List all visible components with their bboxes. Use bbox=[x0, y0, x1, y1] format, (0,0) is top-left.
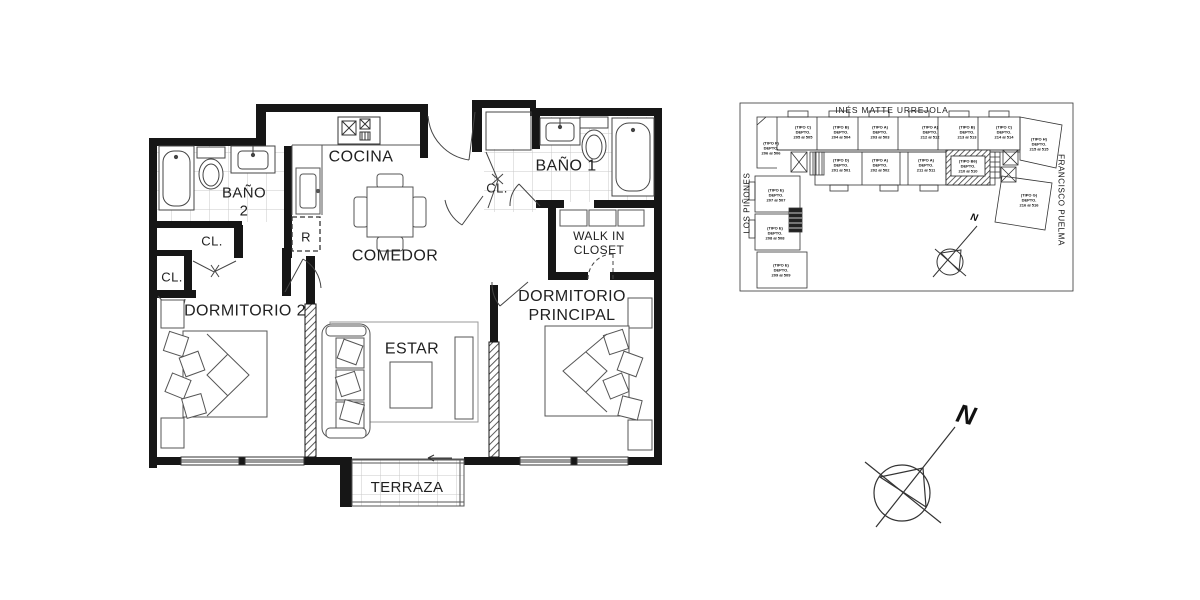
site-plan-title: INÉS MATTE URREJOLA bbox=[835, 105, 948, 115]
room-label-walkin-line2: CLOSET bbox=[573, 243, 625, 257]
dining-table-icon bbox=[354, 174, 426, 251]
room-label-comedor: COMEDOR bbox=[352, 248, 438, 267]
unit-range: 210 al 510 bbox=[959, 169, 978, 174]
unit-label: (TIPO A) DEPTO. 203 al 503 bbox=[871, 125, 890, 140]
unit-range: 202 al 502 bbox=[871, 168, 890, 173]
toilet-icon-2 bbox=[580, 117, 608, 162]
stove-icon bbox=[338, 117, 380, 144]
unit-label: (TIPO A) DEPTO. 211 al 511 bbox=[917, 158, 935, 173]
closet-label-entry: CL. bbox=[486, 180, 507, 195]
unit-label: (TIPO E) DEPTO. 207 al 507 bbox=[767, 188, 786, 203]
room-label-estar: ESTAR bbox=[385, 341, 439, 360]
room-label-bano2-line2: 2 bbox=[222, 202, 266, 220]
unit-range: 214 al 514 bbox=[995, 135, 1014, 140]
unit-range: 206 al 506 bbox=[762, 151, 781, 156]
room-label-principal-line1: DORMITORIO bbox=[518, 288, 626, 307]
room-label-walkin-line1: WALK IN bbox=[573, 229, 625, 243]
unit-range: 208 al 508 bbox=[766, 236, 785, 241]
unit-range: 204 al 504 bbox=[832, 135, 851, 140]
unit-range: 203 al 503 bbox=[871, 135, 890, 140]
street-label-left: LOS PIÑONES bbox=[743, 173, 752, 234]
unit-label: (TIPO H) DEPTO. 215 al 515 bbox=[1030, 137, 1049, 152]
unit-range: 212 al 512 bbox=[921, 135, 940, 140]
bathtub-icon-2 bbox=[612, 118, 654, 196]
unit-label: (TIPO B) DEPTO. 213 al 513 bbox=[958, 125, 977, 140]
room-label-cocina: COCINA bbox=[329, 149, 394, 168]
room-label-principal: DORMITORIO PRINCIPAL bbox=[518, 288, 626, 326]
unit-label: (TIPO D) DEPTO. 201 al 501 bbox=[832, 158, 851, 173]
tv-console-icon bbox=[455, 337, 473, 419]
living-room-furniture bbox=[322, 322, 478, 438]
unit-range: 201 al 501 bbox=[832, 168, 851, 173]
unit-label: (TIPO F) DEPTO. 206 al 506 bbox=[762, 141, 781, 156]
room-label-bano2: BAÑO 2 bbox=[222, 184, 266, 219]
site-compass bbox=[933, 226, 977, 277]
closet-shelves bbox=[560, 210, 644, 226]
refrigerator-label: R bbox=[301, 229, 311, 244]
unit-range: 205 al 505 bbox=[794, 135, 813, 140]
unit-range: 213 al 513 bbox=[958, 135, 977, 140]
toilet-icon bbox=[197, 147, 225, 189]
coffee-table-icon bbox=[390, 362, 432, 408]
unit-label: (TIPO E) DEPTO. 209 al 509 bbox=[772, 263, 791, 278]
page: COCINA BAÑO 2 COMEDOR BAÑO 1 CL. CL. CL.… bbox=[0, 0, 1200, 600]
unit-label: (TIPO C) DEPTO. 205 al 505 bbox=[794, 125, 813, 140]
unit-label: (TIPO B) DEPTO. 204 al 504 bbox=[832, 125, 851, 140]
unit-range: 209 al 509 bbox=[772, 273, 791, 278]
unit-label: (TIPO E) DEPTO. 208 al 508 bbox=[766, 226, 785, 241]
unit-label-highlighted: (TIPO B6) DEPTO. 210 al 510 bbox=[959, 159, 978, 174]
north-compass bbox=[865, 427, 955, 527]
unit-label: (TIPO C) DEPTO. 214 al 514 bbox=[995, 125, 1014, 140]
bathtub-icon bbox=[159, 146, 194, 210]
sink-icon bbox=[231, 146, 275, 173]
room-label-walkin: WALK IN CLOSET bbox=[573, 229, 625, 257]
unit-range: 207 al 507 bbox=[767, 198, 786, 203]
unit-range: 215 al 515 bbox=[1030, 147, 1049, 152]
street-label-right: FRANCISCO PUELMA bbox=[1057, 154, 1066, 246]
closet-label-2: CL. bbox=[161, 269, 182, 284]
unit-label: (TIPO G) DEPTO. 216 al 516 bbox=[1020, 193, 1039, 208]
bed-icon-dorm2 bbox=[161, 300, 267, 448]
room-label-terraza: TERRAZA bbox=[371, 479, 444, 497]
unit-range: 211 al 511 bbox=[917, 168, 935, 173]
unit-range: 216 al 516 bbox=[1020, 203, 1039, 208]
stair-core bbox=[789, 208, 802, 232]
unit-label: (TIPO A) DEPTO. 202 al 502 bbox=[871, 158, 890, 173]
room-label-principal-line2: PRINCIPAL bbox=[518, 307, 626, 326]
room-label-bano1: BAÑO 1 bbox=[535, 158, 596, 177]
room-label-bano2-line1: BAÑO bbox=[222, 184, 266, 202]
room-label-dormitorio2: DORMITORIO 2 bbox=[184, 303, 306, 322]
sink-icon-2 bbox=[540, 118, 580, 145]
unit-label: (TIPO A) DEPTO. 212 al 512 bbox=[921, 125, 940, 140]
closet-label-1: CL. bbox=[201, 233, 222, 248]
